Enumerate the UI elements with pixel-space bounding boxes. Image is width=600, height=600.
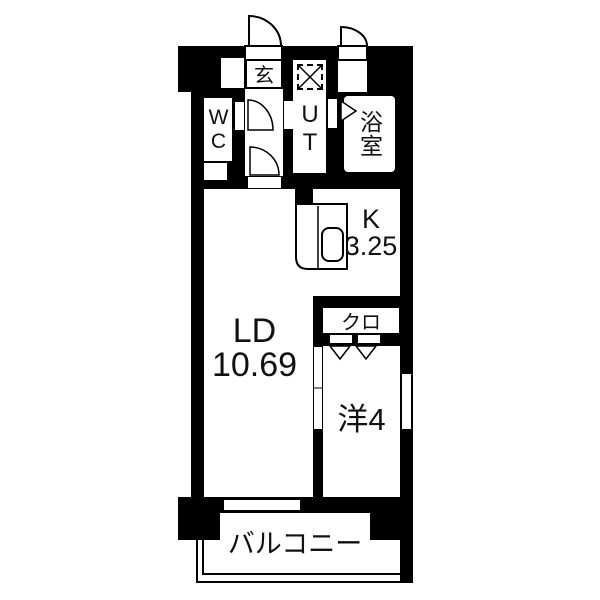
bath-label: 浴室 <box>344 98 395 170</box>
storage-door-leaf <box>337 45 368 61</box>
closet-fold-triangle-left <box>330 346 350 359</box>
storage-recess <box>338 61 367 92</box>
living-size: 10.69 <box>202 348 307 382</box>
wall-right <box>400 46 413 583</box>
kitchen-size: 3.25 <box>342 233 400 260</box>
wall-left-top-block <box>178 60 204 92</box>
wall-kitchen-step-a <box>295 185 313 205</box>
side-window <box>401 373 412 430</box>
wc-alcove <box>204 163 227 180</box>
living-name: LD <box>202 314 307 348</box>
living-label: LD 10.69 <box>202 314 307 382</box>
entry-side-notch <box>221 58 244 88</box>
wc-door-opening <box>234 101 245 131</box>
room-divider-sliding-door <box>313 346 323 430</box>
closet-label: クロ <box>323 308 399 333</box>
wc-label: WC <box>202 98 234 161</box>
washing-machine-box <box>297 64 323 90</box>
balcony-sliding-window <box>222 498 302 512</box>
storage-door-arc <box>341 27 367 46</box>
wall-divider-lower <box>313 430 323 497</box>
kitchen-label: K 3.25 <box>342 206 400 260</box>
bath-door-opening <box>327 98 338 129</box>
kitchen-name: K <box>342 206 400 233</box>
floor-plan: 玄 WC UT 浴室 K 3.25 LD 10.69 クロ 洋4 バルコニー <box>0 0 600 600</box>
hallway <box>245 89 283 176</box>
wall-kitchen-step-b <box>303 205 313 218</box>
genkan-label: 玄 <box>245 58 283 89</box>
utility-label: UT <box>293 90 326 168</box>
western-room-label: 洋4 <box>323 398 400 434</box>
balcony-label: バルコニー <box>210 524 380 558</box>
entrance-door-arc <box>249 16 281 46</box>
kitchen-sink <box>322 228 343 261</box>
closet-fold-triangle-right <box>356 346 376 359</box>
hall-living-opening <box>247 176 282 189</box>
